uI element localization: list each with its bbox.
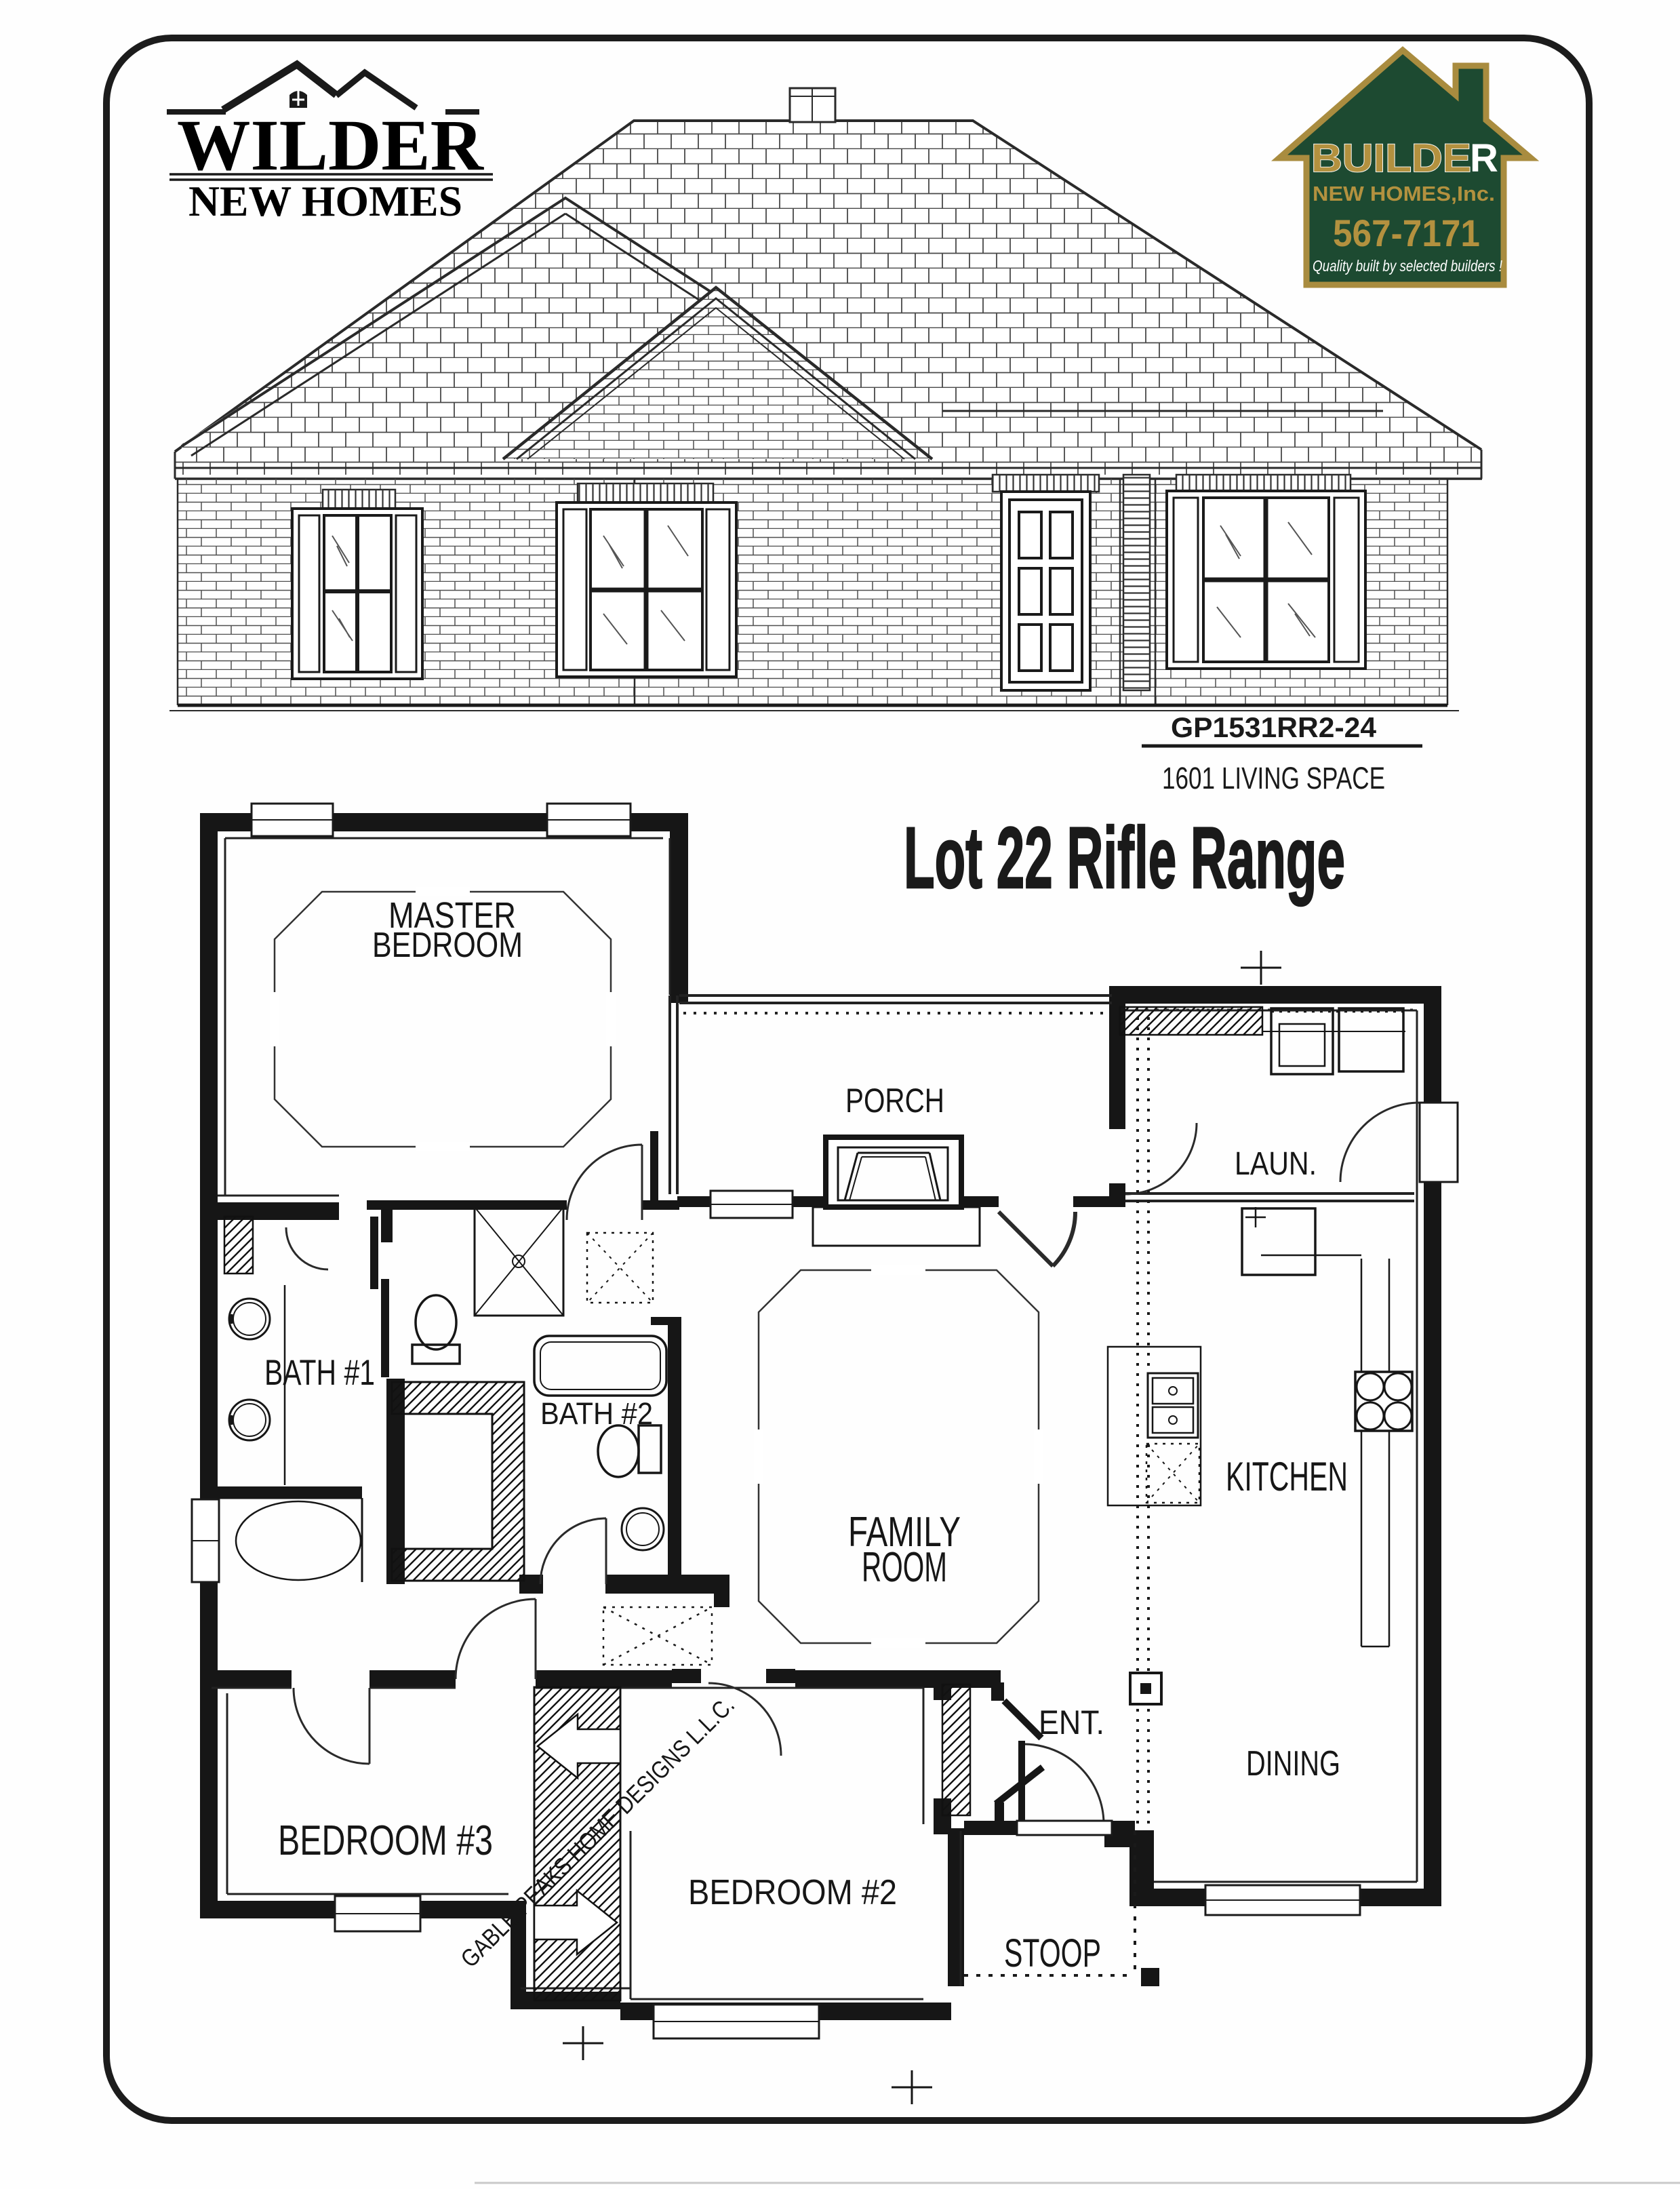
- svg-text:GP1531RR2-24: GP1531RR2-24: [1171, 711, 1377, 743]
- svg-text:BEDROOM #3: BEDROOM #3: [278, 1817, 493, 1864]
- svg-text:BEDROOM #2: BEDROOM #2: [688, 1873, 897, 1912]
- svg-text:ROOM: ROOM: [862, 1544, 947, 1591]
- svg-text:STOOP: STOOP: [1004, 1931, 1101, 1975]
- svg-text:BATH #1: BATH #1: [264, 1353, 375, 1393]
- svg-text:BATH #2: BATH #2: [540, 1396, 653, 1431]
- svg-text:BUILDE: BUILDE: [1311, 136, 1471, 180]
- svg-text:NEW HOMES,Inc.: NEW HOMES,Inc.: [1313, 182, 1495, 205]
- svg-text:1601 LIVING SPACE: 1601 LIVING SPACE: [1162, 761, 1385, 795]
- svg-text:BEDROOM: BEDROOM: [372, 926, 523, 965]
- svg-text:Quality built by selected buil: Quality built by selected builders !: [1313, 257, 1502, 275]
- svg-text:DINING: DINING: [1246, 1744, 1340, 1783]
- svg-text:KITCHEN: KITCHEN: [1226, 1454, 1348, 1499]
- svg-text:PORCH: PORCH: [845, 1082, 944, 1120]
- svg-text:R: R: [1470, 136, 1498, 180]
- svg-text:ENT.: ENT.: [1039, 1703, 1104, 1741]
- svg-text:Lot 22 Rifle Range: Lot 22 Rifle Range: [904, 810, 1345, 907]
- svg-text:NEW HOMES: NEW HOMES: [188, 177, 462, 225]
- svg-text:567-7171: 567-7171: [1333, 212, 1480, 254]
- svg-text:LAUN.: LAUN.: [1235, 1146, 1317, 1182]
